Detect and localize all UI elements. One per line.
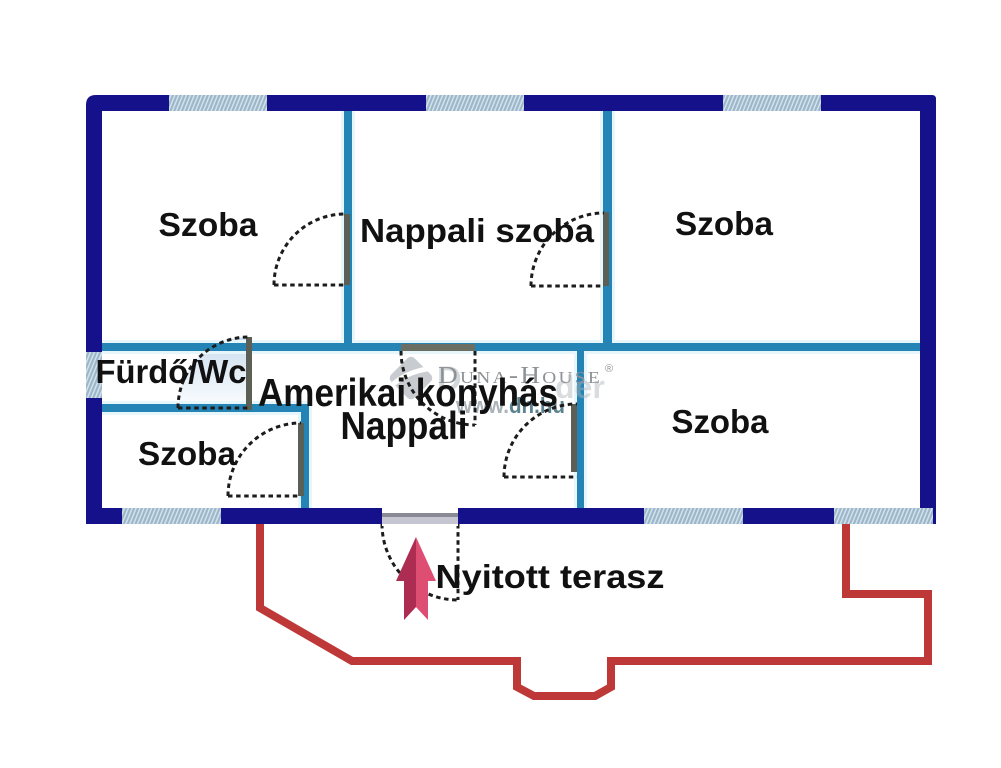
svg-text:Szoba: Szoba xyxy=(138,435,237,472)
svg-text:Szoba: Szoba xyxy=(159,206,259,243)
svg-text:Nyitott terasz: Nyitott terasz xyxy=(436,558,665,595)
svg-text:Nappali szoba: Nappali szoba xyxy=(360,212,595,249)
svg-text:Nappali: Nappali xyxy=(341,405,468,448)
svg-text:Szoba: Szoba xyxy=(675,205,774,242)
svg-text:Szoba: Szoba xyxy=(672,403,770,440)
svg-text:®: ® xyxy=(605,363,613,375)
svg-text:Fürdő/Wc: Fürdő/Wc xyxy=(96,353,247,390)
